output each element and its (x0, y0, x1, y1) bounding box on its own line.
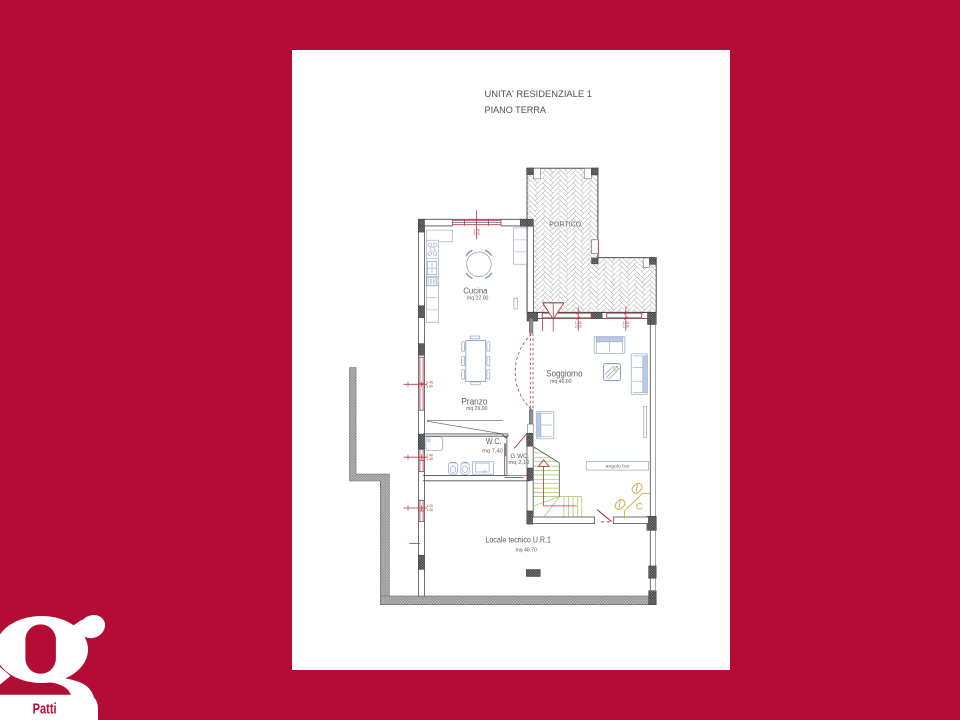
svg-text:mq 29,00: mq 29,00 (466, 406, 488, 412)
svg-text:mq 7,40: mq 7,40 (482, 448, 503, 454)
svg-text:UNITA' RESIDENZIALE 1: UNITA' RESIDENZIALE 1 (485, 88, 593, 99)
svg-text:PORTICO: PORTICO (549, 222, 582, 229)
svg-text:angolo bar: angolo bar (606, 464, 631, 469)
svg-text:Pranzo: Pranzo (461, 396, 487, 406)
svg-text:C: C (636, 501, 643, 512)
svg-text:2.20: 2.20 (622, 325, 629, 329)
svg-text:mq 22,00: mq 22,00 (467, 296, 489, 302)
svg-text:PIANO TERRA: PIANO TERRA (485, 104, 547, 115)
svg-text:Soggiorno: Soggiorno (546, 368, 582, 378)
svg-text:1.00: 1.00 (426, 384, 433, 388)
svg-text:1.40: 1.40 (426, 457, 433, 461)
svg-text:mq 46,00: mq 46,00 (550, 379, 572, 385)
svg-text:2.20: 2.20 (575, 325, 582, 329)
svg-text:1.40: 1.40 (426, 508, 433, 512)
svg-text:mq 2,10: mq 2,10 (508, 460, 529, 466)
svg-text:Cucina: Cucina (463, 285, 487, 295)
svg-text:2.20: 2.20 (473, 232, 480, 236)
svg-text:Locale tecnico U.R.1: Locale tecnico U.R.1 (485, 534, 551, 544)
svg-text:mq 48,70: mq 48,70 (516, 548, 538, 554)
svg-text:W.C.: W.C. (486, 437, 502, 446)
